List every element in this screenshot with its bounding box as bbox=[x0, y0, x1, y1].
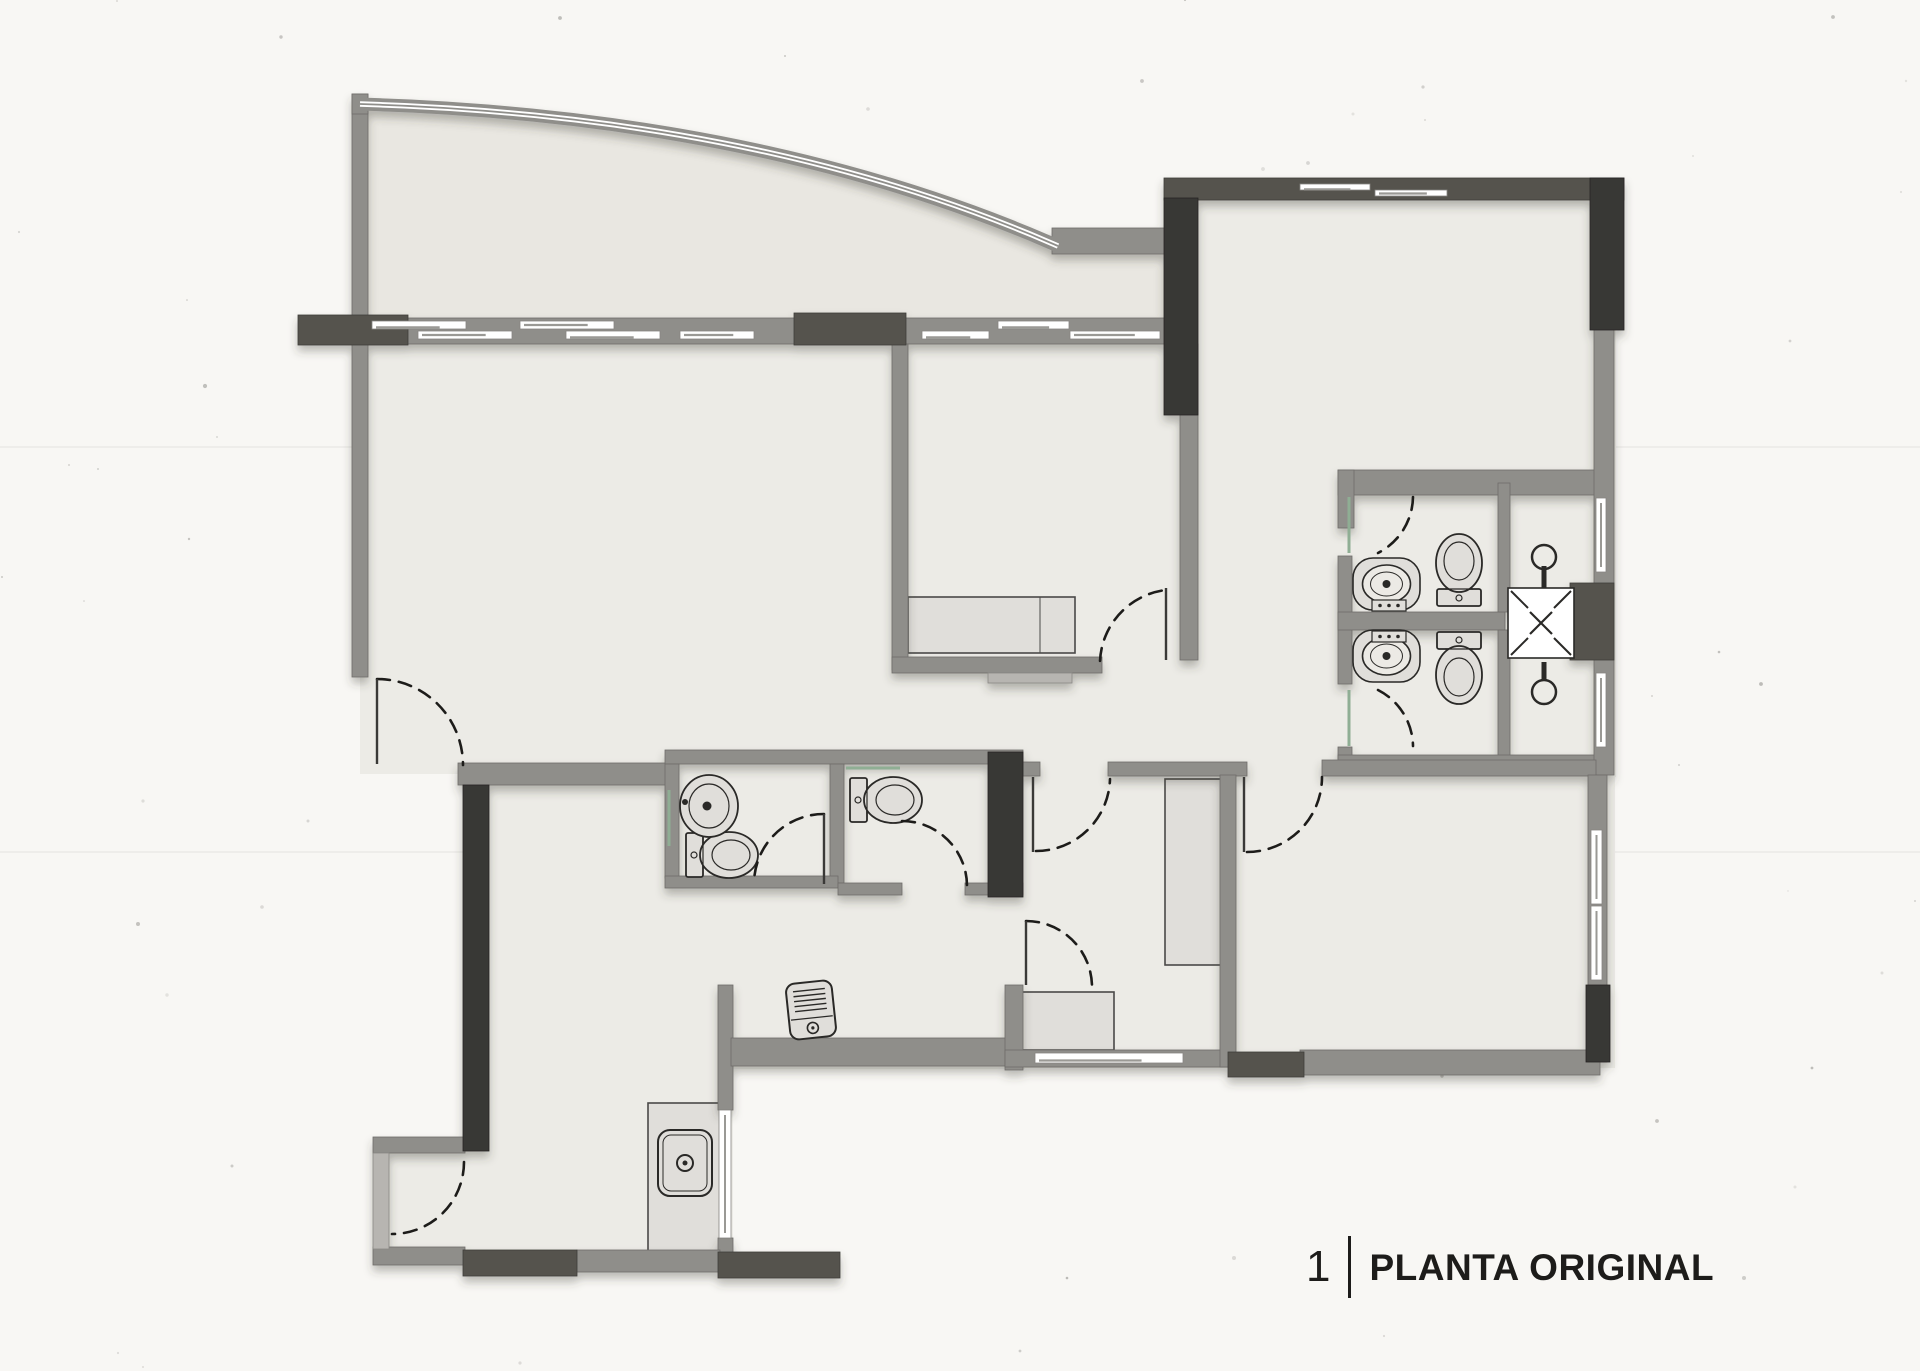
speckle-dot bbox=[165, 993, 168, 996]
structural-column bbox=[988, 752, 1023, 897]
furniture-counter bbox=[908, 597, 1075, 653]
wall bbox=[731, 1038, 1007, 1066]
sink-drain bbox=[1383, 580, 1391, 588]
speckle-dot bbox=[866, 107, 870, 111]
floor-plan-page: 1 PLANTA ORIGINAL bbox=[0, 0, 1920, 1371]
speckle-dot bbox=[97, 468, 99, 470]
vanity-sink bbox=[1353, 558, 1420, 611]
tray-dot bbox=[1378, 635, 1382, 639]
speckle-dot bbox=[1066, 1277, 1069, 1280]
structural-column bbox=[463, 785, 489, 1151]
speckle-dot bbox=[1140, 79, 1144, 83]
drawing-title: 1 PLANTA ORIGINAL bbox=[1306, 1236, 1714, 1298]
structural-column bbox=[1164, 198, 1198, 415]
wall bbox=[665, 750, 1023, 764]
wall bbox=[1052, 228, 1166, 254]
floor-plan-drawing bbox=[0, 0, 1920, 1371]
speckle-dot bbox=[1787, 890, 1788, 891]
speckle-dot bbox=[18, 231, 20, 233]
toilet-symbol bbox=[850, 777, 922, 823]
wall bbox=[665, 764, 679, 878]
wall bbox=[373, 1247, 465, 1265]
toilet-symbol bbox=[686, 832, 758, 878]
wall bbox=[373, 1137, 465, 1153]
wall bbox=[1338, 612, 1505, 630]
wall bbox=[838, 883, 902, 895]
wall bbox=[830, 764, 844, 883]
speckle-dot bbox=[1383, 1335, 1385, 1337]
speckle-dot bbox=[203, 384, 207, 388]
sink-tap bbox=[682, 799, 688, 805]
speckle-dot bbox=[1692, 155, 1694, 157]
tray-dot bbox=[1378, 604, 1382, 608]
toilet-bowl bbox=[1436, 646, 1482, 704]
speckle-dot bbox=[141, 799, 144, 802]
speckle-dot bbox=[1794, 1186, 1797, 1189]
toilet-bowl bbox=[864, 777, 922, 823]
speckle-dot bbox=[1811, 1067, 1814, 1070]
speckle-dot bbox=[518, 1361, 521, 1364]
toilet-bowl bbox=[700, 832, 758, 878]
toilet-symbol bbox=[1436, 632, 1482, 704]
sink-drain bbox=[703, 802, 712, 811]
wall-column bbox=[1228, 1052, 1304, 1077]
wall bbox=[577, 1250, 720, 1272]
speckle-dot bbox=[1019, 1350, 1022, 1353]
wall-light bbox=[373, 1153, 389, 1249]
speckle-dot bbox=[1232, 1256, 1236, 1260]
wall bbox=[1338, 470, 1596, 495]
title-divider bbox=[1348, 1236, 1351, 1298]
tray-dot bbox=[1387, 604, 1391, 608]
wall bbox=[1338, 470, 1354, 528]
speckle-dot bbox=[1881, 972, 1884, 975]
wall bbox=[1300, 1050, 1600, 1075]
room-floor bbox=[360, 330, 1200, 774]
speckle-dot bbox=[136, 922, 140, 926]
speckle-dot bbox=[1306, 161, 1310, 165]
speckle-dot bbox=[142, 1366, 144, 1368]
tray-dot bbox=[1396, 635, 1400, 639]
speckle-dot bbox=[1651, 695, 1653, 697]
tray-dot bbox=[1387, 635, 1391, 639]
speckle-dot bbox=[1421, 85, 1424, 88]
wall bbox=[892, 344, 908, 670]
speckle-dot bbox=[1905, 80, 1907, 82]
wall bbox=[458, 763, 674, 785]
wall-column bbox=[718, 1252, 840, 1278]
kitchen-sink bbox=[658, 1130, 712, 1196]
speckle-dot bbox=[1900, 191, 1902, 193]
tray-dot bbox=[1396, 604, 1400, 608]
room-floor bbox=[1164, 198, 1616, 500]
wall bbox=[352, 344, 368, 677]
wall-light bbox=[988, 673, 1072, 683]
speckle-dot bbox=[1759, 682, 1763, 686]
drawing-number: 1 bbox=[1306, 1245, 1330, 1289]
structural-column bbox=[1586, 985, 1610, 1062]
wall bbox=[1023, 762, 1040, 776]
speckle-dot bbox=[558, 16, 562, 20]
structural-column bbox=[1590, 178, 1624, 330]
wall bbox=[1108, 762, 1247, 776]
speckle-dot bbox=[216, 436, 218, 438]
speckle-dot bbox=[1789, 340, 1792, 343]
speckle-dot bbox=[279, 35, 282, 38]
speckle-dot bbox=[1352, 113, 1355, 116]
drawing-title-label: PLANTA ORIGINAL bbox=[1369, 1249, 1714, 1286]
speckle-dot bbox=[1718, 651, 1721, 654]
speckle-dot bbox=[1742, 1276, 1746, 1280]
pedestal-sink bbox=[680, 775, 738, 837]
speckle-dot bbox=[1678, 764, 1680, 766]
speckle-dot bbox=[1655, 1119, 1659, 1123]
wall-column bbox=[1164, 178, 1624, 200]
speckle-dot bbox=[1914, 900, 1916, 902]
appliance-symbol bbox=[785, 980, 837, 1041]
speckle-dot bbox=[117, 1352, 119, 1354]
speckle-dot bbox=[1424, 119, 1426, 121]
wall-column bbox=[463, 1250, 577, 1276]
speckle-dot bbox=[186, 299, 188, 301]
speckle-dot bbox=[83, 600, 85, 602]
vanity-sink bbox=[1353, 630, 1420, 682]
toilet-bowl bbox=[1436, 534, 1482, 592]
wall bbox=[892, 657, 1102, 673]
speckle-dot bbox=[1831, 15, 1835, 19]
speckle-dot bbox=[784, 55, 786, 57]
sink-drain-dot bbox=[683, 1161, 688, 1166]
wall bbox=[352, 94, 368, 324]
sink-drain bbox=[1383, 652, 1391, 660]
wall-column bbox=[794, 313, 906, 345]
wall bbox=[1220, 775, 1236, 1067]
duct-shaft-symbol bbox=[1508, 588, 1574, 658]
speckle-dot bbox=[116, 0, 118, 2]
speckle-dot bbox=[260, 905, 264, 909]
furniture-counter bbox=[1022, 992, 1114, 1050]
speckle-dot bbox=[307, 820, 310, 823]
wall-column bbox=[1570, 583, 1614, 660]
wall-column bbox=[298, 315, 408, 345]
furniture-counter bbox=[1165, 779, 1222, 965]
room-floor bbox=[465, 757, 1025, 1069]
toilet-symbol bbox=[1436, 534, 1482, 606]
speckle-dot bbox=[1261, 167, 1265, 171]
wall bbox=[1322, 760, 1596, 776]
speckle-dot bbox=[68, 464, 70, 466]
speckle-dot bbox=[231, 1165, 234, 1168]
speckle-dot bbox=[1, 576, 3, 578]
speckle-dot bbox=[188, 538, 190, 540]
